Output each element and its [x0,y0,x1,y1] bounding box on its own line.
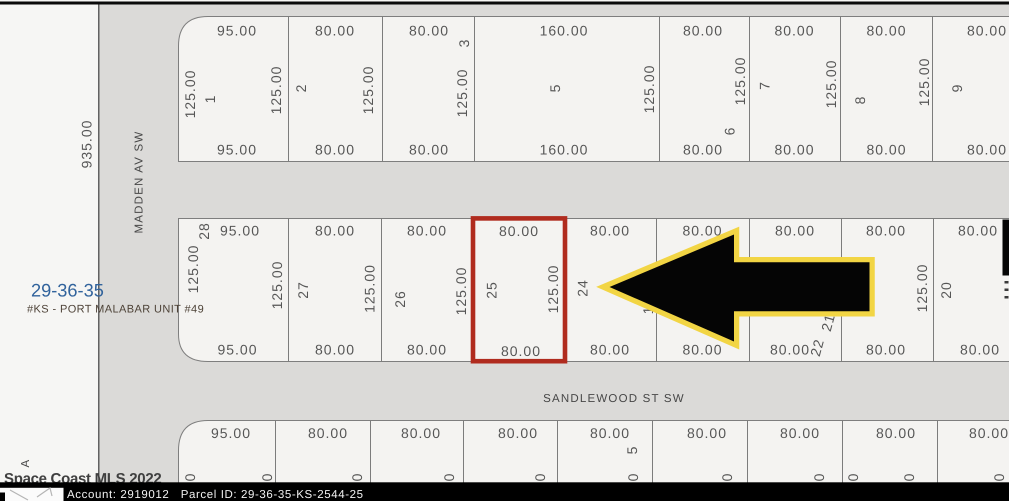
svg-text:80.00: 80.00 [770,342,810,358]
svg-text:80.00: 80.00 [960,342,1000,358]
svg-text:25: 25 [484,281,500,299]
svg-text:80.00: 80.00 [866,342,906,358]
svg-text:80.00: 80.00 [315,342,355,358]
svg-text:125.00: 125.00 [545,265,561,314]
svg-text:80.00: 80.00 [590,342,630,358]
svg-text:80.00: 80.00 [967,142,1007,158]
svg-text:80.00: 80.00 [866,23,906,39]
svg-text:95.00: 95.00 [217,342,257,358]
svg-text:80.00: 80.00 [876,425,916,441]
svg-text:80.00: 80.00 [499,223,539,239]
svg-text:125.00: 125.00 [641,65,657,114]
svg-text:125.00: 125.00 [185,245,201,294]
svg-text:80.00: 80.00 [967,23,1007,39]
svg-text:125.00: 125.00 [360,66,376,115]
svg-text:1: 1 [202,95,218,104]
svg-text:80.00: 80.00 [683,23,723,39]
svg-text:95.00: 95.00 [217,142,257,158]
svg-text:8: 8 [852,96,868,105]
svg-text:2: 2 [293,84,309,93]
svg-text:80.00: 80.00 [409,23,449,39]
svg-text:80.00: 80.00 [682,342,722,358]
svg-text:6: 6 [722,127,738,136]
svg-text:80.00: 80.00 [501,343,541,359]
svg-text:80.00: 80.00 [590,425,630,441]
svg-text:80.00: 80.00 [866,142,906,158]
svg-text:80.00: 80.00 [498,425,538,441]
svg-text:80.00: 80.00 [958,223,998,239]
svg-text:MADDEN AV SW: MADDEN AV SW [134,130,146,233]
svg-text:80.00: 80.00 [969,425,1009,441]
svg-text:A: A [20,459,32,468]
svg-text:80.00: 80.00 [407,342,447,358]
svg-text:80.00: 80.00 [775,223,815,239]
svg-text:125.00: 125.00 [823,60,839,109]
svg-text:95.00: 95.00 [217,23,257,39]
svg-text:80.00: 80.00 [401,425,441,441]
svg-text:125.00: 125.00 [916,58,932,107]
svg-text:80.00: 80.00 [866,223,906,239]
svg-text:125.00: 125.00 [914,264,930,313]
svg-text:#KS - PORT MALABAR UNIT #49: #KS - PORT MALABAR UNIT #49 [27,304,204,316]
svg-text:7: 7 [757,81,773,90]
svg-text:5: 5 [624,446,640,455]
svg-text:28: 28 [196,222,212,240]
svg-text:29-36-35: 29-36-35 [31,281,104,301]
svg-text:95.00: 95.00 [211,425,251,441]
svg-text:125.00: 125.00 [182,70,198,119]
svg-text:80.00: 80.00 [315,142,355,158]
svg-text:20: 20 [938,281,954,299]
svg-text:80.00: 80.00 [407,223,447,239]
svg-text:125.00: 125.00 [269,261,285,310]
svg-text:80.00: 80.00 [409,142,449,158]
svg-text:80.00: 80.00 [315,23,355,39]
svg-text:3: 3 [456,39,472,48]
svg-text:125.00: 125.00 [268,66,284,115]
svg-text:80.00: 80.00 [780,425,820,441]
svg-text:5: 5 [547,84,563,93]
svg-text:125.00: 125.00 [732,57,748,106]
svg-text:80.00: 80.00 [590,223,630,239]
svg-text:26: 26 [392,290,408,308]
svg-text:80.00: 80.00 [308,425,348,441]
svg-text:160.00: 160.00 [540,23,589,39]
svg-text:9: 9 [949,84,965,93]
svg-text:24: 24 [575,279,591,297]
svg-text:27: 27 [295,281,311,299]
svg-text:160.00: 160.00 [540,142,589,158]
svg-text:SANDLEWOOD ST SW: SANDLEWOOD ST SW [543,393,685,405]
svg-text:80.00: 80.00 [683,142,723,158]
svg-text:125.00: 125.00 [362,264,378,313]
svg-text:125.00: 125.00 [454,69,470,118]
svg-text:80.00: 80.00 [774,23,814,39]
svg-text:935.00: 935.00 [79,120,95,169]
svg-text:125.00: 125.00 [453,267,469,316]
svg-text:80.00: 80.00 [682,223,722,239]
svg-text:95.00: 95.00 [220,223,260,239]
svg-text:80.00: 80.00 [687,425,727,441]
svg-text:Account: 2919012 Parcel ID:: Account: 2919012 Parcel ID: 29-36-35-KS-… [67,489,364,501]
svg-text:80.00: 80.00 [315,223,355,239]
svg-text:80.00: 80.00 [774,142,814,158]
